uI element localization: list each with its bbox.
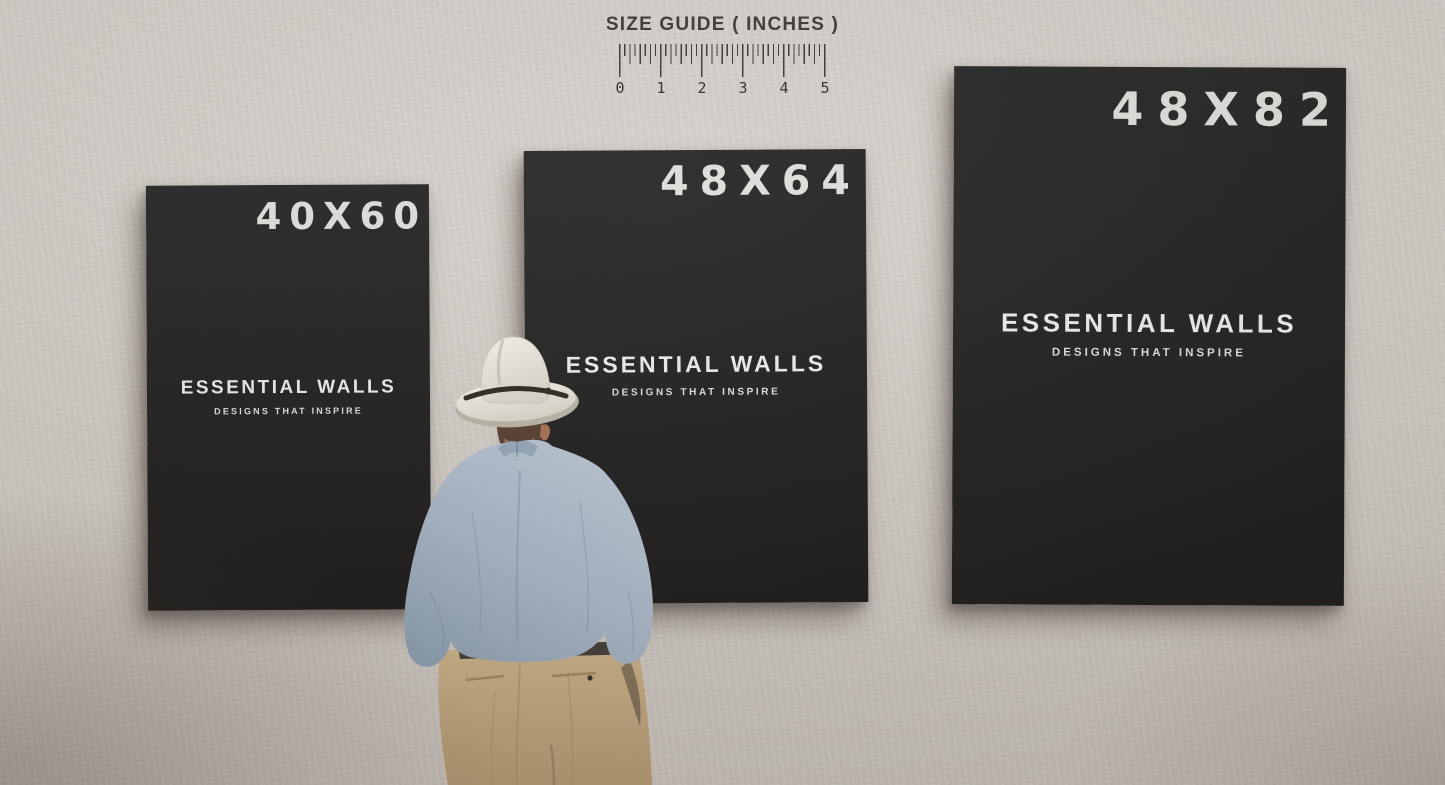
man-figure (400, 330, 662, 785)
shirt (404, 440, 653, 667)
fedora-hat (454, 337, 581, 431)
ruler-number: 0 (610, 79, 630, 97)
ruler-number: 2 (692, 79, 712, 97)
poster-size-label: 48X82 (953, 81, 1346, 137)
ruler-number: 5 (815, 79, 835, 97)
poster-brand: ESSENTIAL WALLS (147, 376, 430, 399)
ruler-number: 3 (733, 79, 753, 97)
ruler-number: 1 (651, 79, 671, 97)
poster-tagline: DESIGNS THAT INSPIRE (147, 405, 430, 416)
poster-40x60: 40X60 ESSENTIAL WALLS DESIGNS THAT INSPI… (146, 184, 431, 610)
size-guide-title: SIZE GUIDE ( INCHES ) (560, 14, 885, 36)
poster-brand: ESSENTIAL WALLS (953, 307, 1345, 340)
poster-48x82: 48X82 ESSENTIAL WALLS DESIGNS THAT INSPI… (952, 66, 1346, 606)
ruler-ticks (615, 44, 827, 77)
poster-size-label: 48X64 (519, 156, 866, 206)
ruler-number: 4 (774, 79, 794, 97)
gallery-wall-scene: SIZE GUIDE ( INCHES ) 0 1 2 3 4 5 40X60 … (0, 0, 1445, 785)
poster-tagline: DESIGNS THAT INSPIRE (953, 346, 1345, 360)
pocket-button (587, 675, 592, 680)
poster-size-label: 40X60 (144, 194, 429, 238)
trousers (438, 648, 652, 785)
ruler-numbers: 0 1 2 3 4 5 (615, 79, 827, 99)
ear (540, 424, 550, 440)
